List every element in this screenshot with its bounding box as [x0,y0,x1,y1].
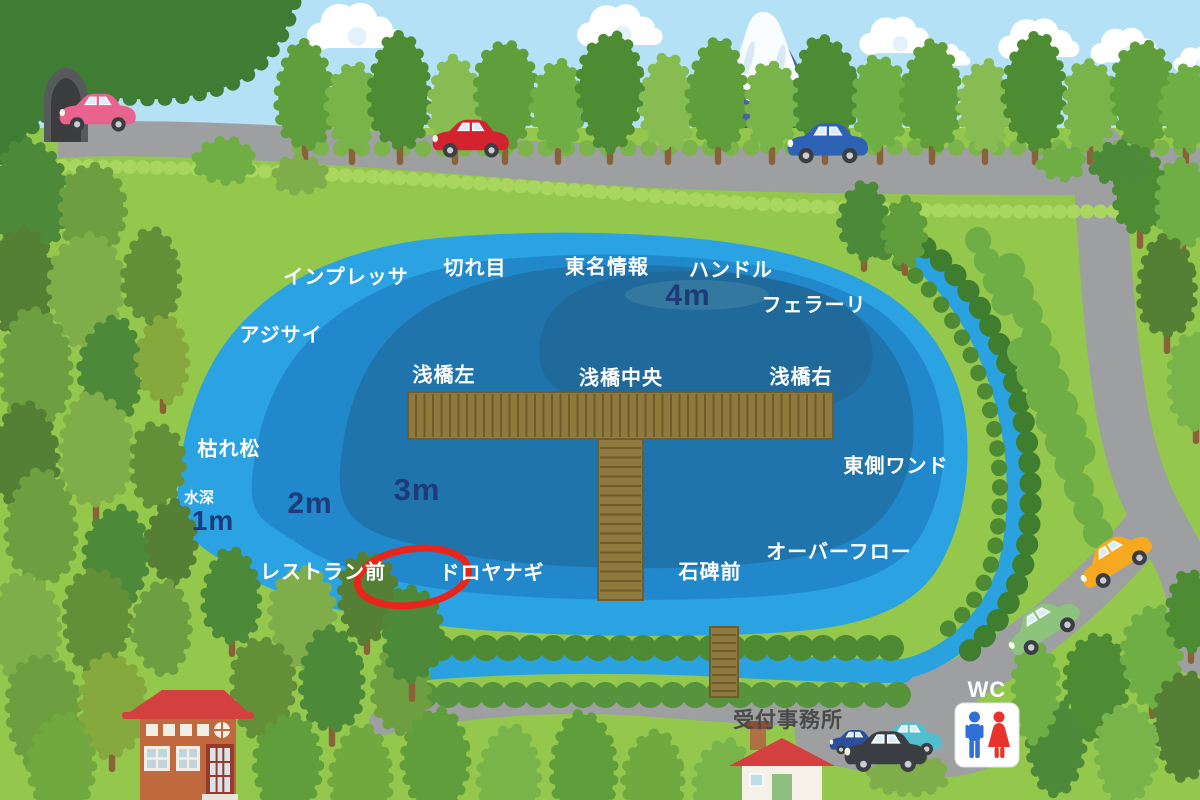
tree [205,551,257,641]
foot-bridge [710,627,738,697]
dock-stem [598,439,643,600]
house-window [144,746,170,771]
restaurant-house [122,690,254,800]
tree [276,159,325,191]
tree [332,728,389,800]
wc-sign [955,703,1019,767]
tree [1159,162,1200,247]
tree [125,231,178,322]
tree [1162,67,1200,149]
tree [134,426,182,505]
tree [257,717,320,800]
tree [856,59,905,148]
office-window [750,774,763,786]
tree [1171,336,1200,427]
house-door [202,744,238,800]
tree [533,63,581,149]
depth-4m-hole [625,280,769,310]
tree [841,184,885,258]
tree [63,395,130,503]
tree [960,63,1008,149]
map-illustration [0,0,1200,800]
tree [580,35,641,149]
tree [278,43,330,146]
tree [1067,63,1115,148]
tree [371,35,427,146]
tree [1169,573,1200,649]
tree [328,66,375,150]
tree [749,65,797,148]
house-window [176,746,200,771]
tree [303,629,361,728]
tree [1005,35,1062,148]
fishing-pond-map: 受付事務所 WC インプレッサ切れ目東名情報ハンドルフェラーリアジサイ浅橋左浅橋… [0,0,1200,800]
tree [643,57,692,147]
office-door [772,774,792,800]
south-stream [414,662,902,671]
tree [480,728,537,800]
tree [138,319,185,401]
tree [1040,148,1082,177]
